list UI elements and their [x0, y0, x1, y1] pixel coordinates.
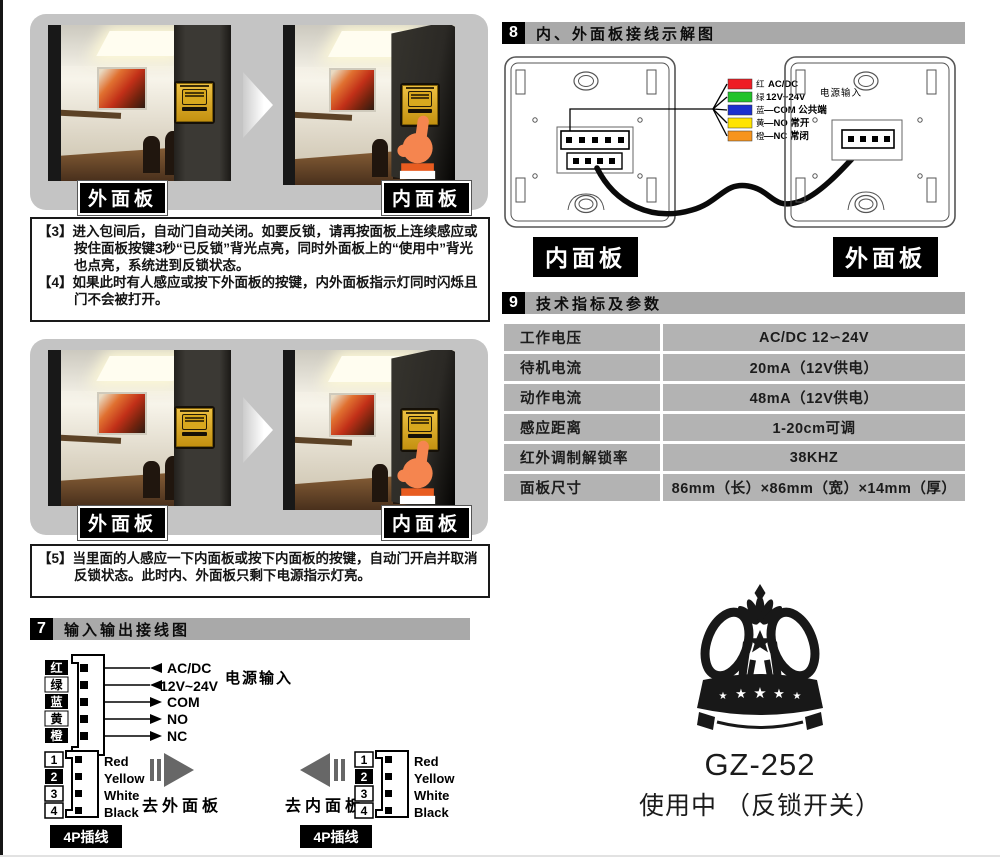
svg-text:2: 2 [361, 770, 368, 784]
door-frame-strip [48, 25, 61, 181]
spec-name: 感应距离 [504, 414, 660, 441]
svg-text:White: White [414, 788, 449, 803]
inner-panel-badge: 内面板 [382, 181, 471, 215]
spec-name: 面板尺寸 [504, 474, 660, 501]
inner-panel-badge: 内面板 [382, 506, 471, 540]
inner-panel-badge: 内面板 [533, 237, 638, 277]
svg-text:Black: Black [414, 805, 449, 820]
spec-value: 38KHZ [663, 444, 965, 471]
svg-text:★: ★ [735, 686, 747, 701]
outer-panel-photo [48, 25, 231, 181]
inner-panel-photo [283, 350, 455, 510]
svg-text:4P插线: 4P插线 [63, 829, 108, 845]
inner-panel-connectors [557, 127, 633, 173]
spec-name: 红外调制解锁率 [504, 444, 660, 471]
spec-name: 待机电流 [504, 354, 660, 381]
panel-wiring-diagram: 红AC/DC 绿12V~24V 蓝—COM 公共端 黄—NO 常开 橙—NC 常… [500, 52, 965, 235]
spec-value: 48mA（12V供电） [663, 384, 965, 411]
svg-text:4: 4 [51, 804, 58, 818]
spec-value: 20mA（12V供电） [663, 354, 965, 381]
plug-to-inner: 去内面板 1 2 3 4 Red Yellow White Black 4P插线 [285, 751, 455, 848]
page-left-edge [0, 0, 3, 857]
instruction-note-5: 【5】当里面的人感应一下内面板或按下内面板的按键，自动门开启并取消反锁状态。此时… [30, 544, 490, 598]
svg-text:Yellow: Yellow [104, 771, 145, 786]
ceiling-light [96, 31, 186, 56]
svg-text:蓝: 蓝 [50, 694, 62, 709]
svg-text:AC/DC: AC/DC [167, 660, 211, 676]
section-number: 7 [30, 618, 53, 640]
spec-value: 1-20cm可调 [663, 414, 965, 441]
svg-text:1: 1 [51, 753, 58, 767]
right-arrow-icon [243, 72, 273, 138]
access-panel [174, 406, 215, 449]
signal-labels: AC/DC 12V~24V 电源输入 COM NO NC [160, 660, 293, 744]
to-inner-label: 去内面板 [285, 796, 365, 815]
svg-text:—NC 常闭: —NC 常闭 [764, 130, 809, 142]
svg-text:AC/DC: AC/DC [768, 79, 798, 90]
svg-text:★: ★ [793, 691, 802, 702]
svg-text:3: 3 [361, 787, 368, 801]
outer-panel-badge: 外面板 [78, 181, 167, 215]
svg-text:1: 1 [361, 753, 368, 767]
section-number: 9 [502, 292, 525, 314]
svg-text:★: ★ [719, 691, 728, 702]
svg-text:White: White [104, 788, 139, 803]
signal-arrowheads [150, 663, 162, 741]
svg-text:橙: 橙 [50, 728, 63, 743]
access-panel [174, 81, 215, 124]
wire-color-labels: 红 绿 蓝 黄 橙 [45, 660, 68, 743]
svg-text:NC: NC [167, 728, 187, 744]
photo-flow-block-1: 外面板 内面板 [30, 14, 488, 210]
svg-text:2: 2 [51, 770, 58, 784]
svg-text:绿: 绿 [756, 92, 765, 102]
note-4: 【4】如果此时有人感应或按下外面板的按键，内外面板指示灯同时闪烁且门不会被打开。 [38, 274, 482, 308]
instruction-note-3-4: 【3】进入包间后，自动门自动关闭。如要反锁，请再按面板上连续感应或按住面板按键3… [30, 217, 490, 322]
crown-logo-icon: ★ ★ ★ ★ ★ [685, 582, 835, 742]
outer-panel-badge: 外面板 [833, 237, 938, 277]
to-outer-label: 去外面板 [142, 796, 222, 815]
inner-panel-photo [283, 25, 455, 185]
outer-panel-connector [832, 120, 902, 160]
svg-text:4P插线: 4P插线 [313, 829, 358, 845]
svg-text:Red: Red [104, 754, 129, 769]
chair [143, 136, 159, 173]
section-7-header: 7 输入输出接线图 [30, 618, 470, 640]
spec-name: 工作电压 [504, 324, 660, 351]
connection-cable [597, 150, 860, 214]
wall-painting [97, 67, 147, 110]
svg-text:12V~24V: 12V~24V [160, 678, 219, 694]
svg-text:—NO 常开: —NO 常开 [764, 117, 810, 129]
plug-to-outer: 1 2 3 4 Red Yellow White Black 去外面板 4P插线 [45, 751, 222, 848]
svg-text:黄: 黄 [50, 711, 62, 726]
spec-table: 工作电压 AC/DC 12∽24V 待机电流 20mA（12V供电） 动作电流 … [504, 324, 965, 501]
manual-page: 外面板 内面板 【3】进入包间后，自动门自动关闭。如要反锁，请再按面板上连续感应… [0, 0, 1000, 864]
svg-text:Yellow: Yellow [414, 771, 455, 786]
svg-text:Black: Black [104, 805, 139, 820]
svg-text:3: 3 [51, 787, 58, 801]
arrow-right-icon [150, 753, 194, 787]
spec-name: 动作电流 [504, 384, 660, 411]
svg-text:COM: COM [167, 694, 200, 710]
section-8-header: 8 内、外面板接线示解图 [502, 22, 965, 44]
section-9-header: 9 技术指标及参数 [502, 292, 965, 314]
note-3: 【3】进入包间后，自动门自动关闭。如要反锁，请再按面板上连续感应或按住面板按键3… [38, 223, 482, 274]
spec-value: 86mm（长）×86mm（宽）×14mm（厚） [663, 474, 965, 501]
five-pin-connector [72, 655, 104, 755]
section-title: 技术指标及参数 [525, 292, 965, 314]
svg-text:红: 红 [756, 79, 765, 89]
brand-block: ★ ★ ★ ★ ★ GZ-252 使用中 （反锁开关） [555, 582, 965, 822]
product-name: 使用中 （反锁开关） [555, 786, 965, 822]
svg-text:NO: NO [167, 711, 188, 727]
svg-text:电源输入: 电源输入 [225, 669, 293, 687]
hand-press-icon [393, 433, 445, 503]
svg-text:绿: 绿 [50, 677, 63, 692]
right-arrow-icon [243, 397, 273, 463]
svg-text:4: 4 [361, 804, 368, 818]
section-number: 8 [502, 22, 525, 44]
note-5: 【5】当里面的人感应一下内面板或按下内面板的按键，自动门开启并取消反锁状态。此时… [38, 550, 482, 584]
model-number: GZ-252 [555, 747, 965, 783]
svg-text:红: 红 [50, 660, 62, 675]
svg-text:Red: Red [414, 754, 439, 769]
svg-text:★: ★ [773, 686, 785, 701]
section-title: 内、外面板接线示解图 [525, 22, 965, 44]
outer-panel-photo [48, 350, 231, 506]
section-title: 输入输出接线图 [53, 618, 470, 640]
outer-panel-badge: 外面板 [78, 506, 167, 540]
io-wiring-diagram: 红 绿 蓝 黄 橙 AC/DC 12V~24V 电源输入 [30, 645, 490, 860]
arrow-left-icon [300, 753, 345, 787]
photo-flow-block-2: 外面板 内面板 [30, 339, 488, 535]
spec-value: AC/DC 12∽24V [663, 324, 965, 351]
signal-lines [104, 668, 150, 736]
power-in-label: 电源输入 [820, 87, 862, 99]
svg-text:—COM 公共端: —COM 公共端 [764, 104, 827, 116]
svg-text:★: ★ [753, 685, 766, 702]
hand-press-icon [393, 108, 445, 178]
